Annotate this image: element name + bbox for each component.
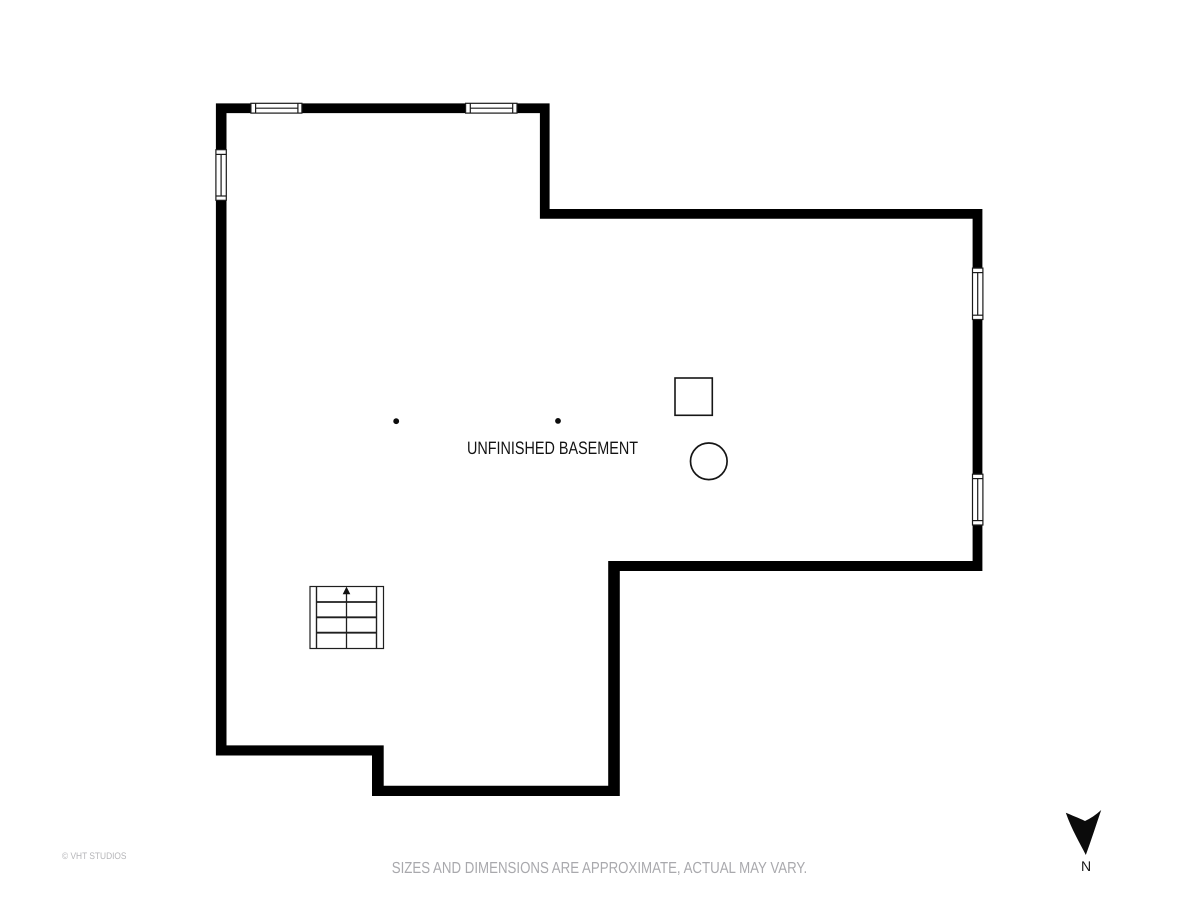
svg-text:UNFINISHED BASEMENT: UNFINISHED BASEMENT: [467, 438, 638, 458]
svg-text:© VHT STUDIOS: © VHT STUDIOS: [62, 851, 127, 862]
svg-text:N: N: [1081, 858, 1091, 874]
svg-text:SIZES AND DIMENSIONS ARE APPRO: SIZES AND DIMENSIONS ARE APPROXIMATE, AC…: [392, 860, 808, 877]
